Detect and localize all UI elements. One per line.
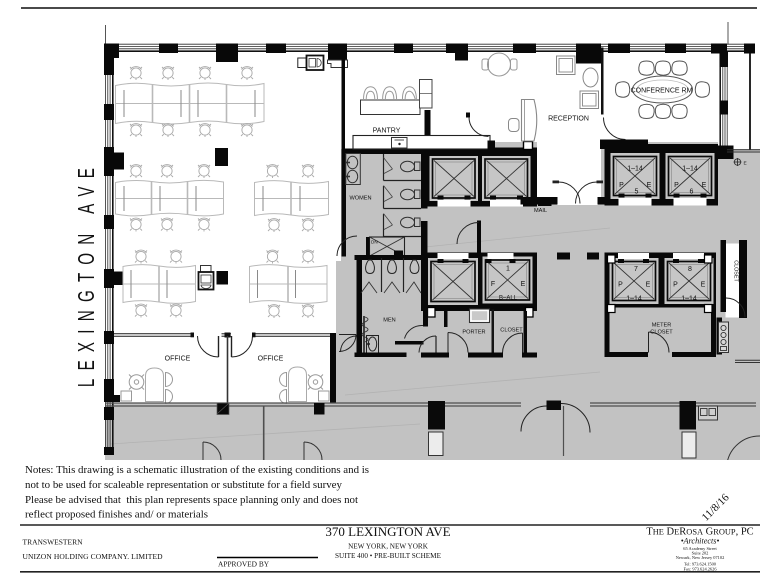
svg-text:370 LEXINGTON AVE: 370 LEXINGTON AVE <box>325 524 450 539</box>
svg-text:1–14: 1–14 <box>682 166 698 173</box>
svg-text:CONFERENCE RM: CONFERENCE RM <box>631 88 693 95</box>
svg-text:6: 6 <box>690 189 694 196</box>
svg-text:CLOSET: CLOSET <box>733 260 739 282</box>
svg-text:SUITE 400 • PRE-BUILT SCHEME: SUITE 400 • PRE-BUILT SCHEME <box>335 552 442 560</box>
svg-text:E: E <box>521 281 526 288</box>
svg-text:not to be used for scaleable r: not to be used for scaleable representat… <box>25 479 342 491</box>
svg-text:1: 1 <box>506 266 510 273</box>
svg-text:P: P <box>674 182 679 189</box>
svg-text:WOMEN: WOMEN <box>349 196 371 202</box>
svg-text:5: 5 <box>635 189 639 196</box>
svg-text:E: E <box>646 282 651 289</box>
svg-text:METER: METER <box>652 323 672 329</box>
svg-text:TRANSWESTERN: TRANSWESTERN <box>23 538 84 547</box>
svg-text:P: P <box>673 282 678 289</box>
svg-text:E: E <box>702 182 707 189</box>
svg-text:B–ALL: B–ALL <box>499 296 518 302</box>
svg-text:E: E <box>701 282 706 289</box>
svg-text:UNIZON HOLDING COMPANY. LIMITE: UNIZON HOLDING COMPANY. LIMITED <box>23 552 164 561</box>
svg-text:PANTRY: PANTRY <box>373 128 401 135</box>
svg-text:LEXINGTON AVE: LEXINGTON AVE <box>74 160 100 387</box>
svg-text:reflect proposed finishes and/: reflect proposed finishes and/ or materi… <box>25 509 208 521</box>
svg-text:PORTER: PORTER <box>462 330 485 336</box>
svg-text:OFFICE: OFFICE <box>165 356 191 363</box>
svg-text:OFFICE: OFFICE <box>258 356 284 363</box>
svg-text:RECEPTION: RECEPTION <box>548 116 589 123</box>
svg-text:CLOSET: CLOSET <box>650 330 673 336</box>
svg-text:1–14: 1–14 <box>626 296 642 303</box>
svg-text:7: 7 <box>634 266 638 273</box>
svg-text:1–14: 1–14 <box>627 166 643 173</box>
svg-text:•Architects•: •Architects• <box>681 537 720 546</box>
svg-text:DN: DN <box>371 240 378 245</box>
svg-text:Please be advised that this p: Please be advised that this plan represe… <box>25 494 358 506</box>
svg-text:Notes: This drawing is a schem: Notes: This drawing is a schematic illus… <box>25 464 369 476</box>
svg-text:1–14: 1–14 <box>681 296 697 303</box>
svg-text:CLOSET: CLOSET <box>500 328 523 334</box>
svg-text:MAIL: MAIL <box>534 208 547 214</box>
svg-text:NEW YORK, NEW YORK: NEW YORK, NEW YORK <box>348 543 429 551</box>
svg-text:Fax: 973.624.2626: Fax: 973.624.2626 <box>683 567 717 572</box>
svg-text:E: E <box>744 161 747 167</box>
svg-text:P: P <box>618 282 623 289</box>
svg-text:8: 8 <box>688 266 692 273</box>
svg-text:APPROVED BY: APPROVED BY <box>218 560 270 569</box>
svg-text:P: P <box>619 182 624 189</box>
svg-text:E: E <box>647 182 652 189</box>
svg-text:F: F <box>491 281 495 288</box>
svg-text:MEN: MEN <box>383 318 395 324</box>
